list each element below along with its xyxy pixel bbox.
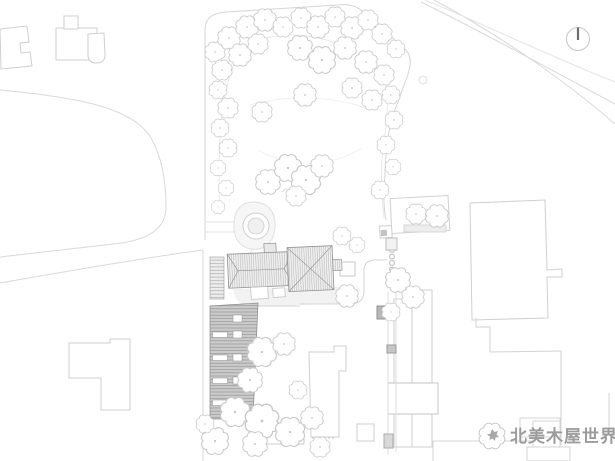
site-plan-canvas: 北美木屋世界 <box>0 0 615 461</box>
tree-canopy <box>310 437 330 457</box>
tree-canopy <box>273 17 293 37</box>
tree-canopy <box>333 227 351 245</box>
tree-canopy <box>294 84 316 106</box>
garden-stairs <box>210 257 224 299</box>
tree-canopy <box>382 86 400 104</box>
tree-canopy <box>385 159 401 175</box>
context-building-nw1 <box>0 26 32 69</box>
utility-box-3 <box>387 345 396 353</box>
tree-canopy <box>219 139 237 157</box>
tree-canopy <box>334 37 356 59</box>
tree-canopy <box>385 111 403 129</box>
watermark-text: 北美木屋世界 <box>510 426 615 447</box>
tree-canopy <box>377 136 395 154</box>
page: 北美木屋世界 <box>0 0 615 461</box>
tree-canopy <box>218 98 238 118</box>
context-building-nw2 <box>56 16 105 63</box>
tree-canopy <box>218 180 234 196</box>
road-west-curve-outer <box>0 250 203 283</box>
tree-canopy <box>372 24 392 44</box>
watermark: 北美木屋世界 <box>479 423 615 449</box>
road-northeast-2 <box>434 0 615 124</box>
utility-box-1 <box>386 238 397 250</box>
house-left-wing <box>227 251 294 288</box>
context-building-e-large <box>470 200 562 320</box>
north-arrow-icon <box>567 28 590 51</box>
watermark-logo-icon <box>479 423 505 449</box>
tree-canopy <box>209 81 227 99</box>
tree-canopy <box>374 65 394 85</box>
road-marker <box>419 76 427 84</box>
house-pavilion <box>287 245 343 291</box>
tree-canopy <box>273 333 295 355</box>
tree-canopy <box>211 119 229 137</box>
tree-canopy <box>342 78 362 98</box>
tree-canopy <box>362 90 382 110</box>
tree-canopy <box>371 181 389 199</box>
road-west-curve-inner <box>0 90 166 257</box>
tree-canopy <box>349 237 365 253</box>
tree-canopy <box>210 160 226 176</box>
context-building-sw-lshape <box>69 339 130 410</box>
tree-canopy <box>387 40 405 58</box>
utility-box-4 <box>384 434 393 448</box>
pond-inner-circle <box>248 218 264 234</box>
lawn-contour-1 <box>258 148 362 163</box>
tree-canopy <box>289 381 307 399</box>
tree-canopy <box>211 200 224 213</box>
tree-canopy <box>252 102 272 122</box>
tree-canopy <box>276 418 305 447</box>
house-porches <box>251 286 285 299</box>
road-northeast-1 <box>421 2 615 104</box>
